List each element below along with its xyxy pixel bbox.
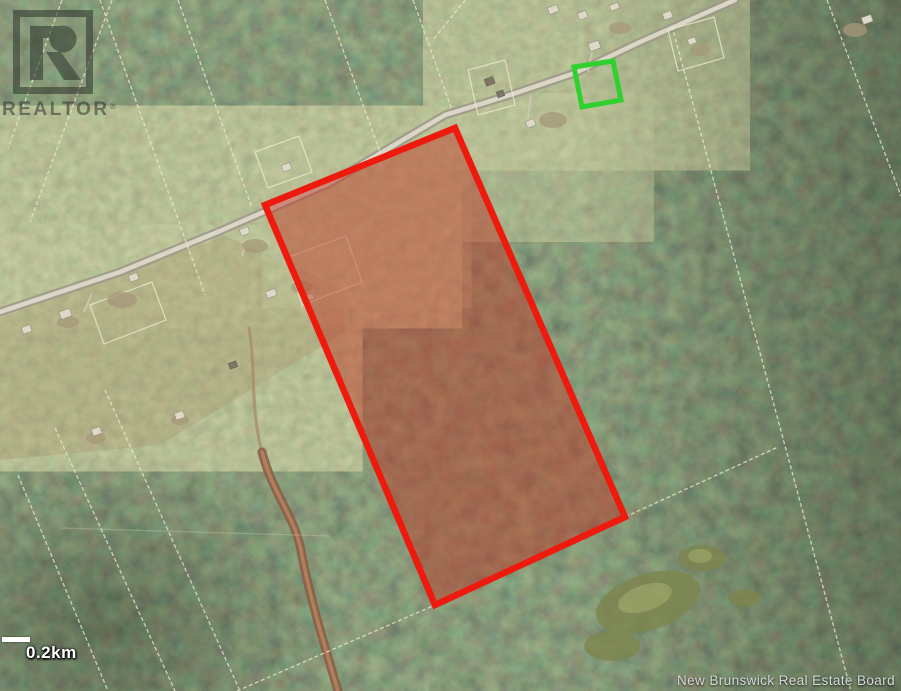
realtor-watermark: REALTOR® xyxy=(2,10,132,121)
scale-bar xyxy=(2,637,30,642)
scale-bar-label: 0.2km xyxy=(26,643,77,663)
map-viewport[interactable]: REALTOR® 0.2km New Brunswick Real Estate… xyxy=(0,0,901,691)
realtor-wordmark-text: REALTOR xyxy=(2,99,110,120)
satellite-map xyxy=(0,0,901,691)
registered-trademark-symbol: ® xyxy=(110,101,117,111)
map-attribution: New Brunswick Real Estate Board xyxy=(677,673,895,688)
realtor-logo-icon xyxy=(13,10,93,94)
realtor-wordmark: REALTOR® xyxy=(2,99,132,121)
